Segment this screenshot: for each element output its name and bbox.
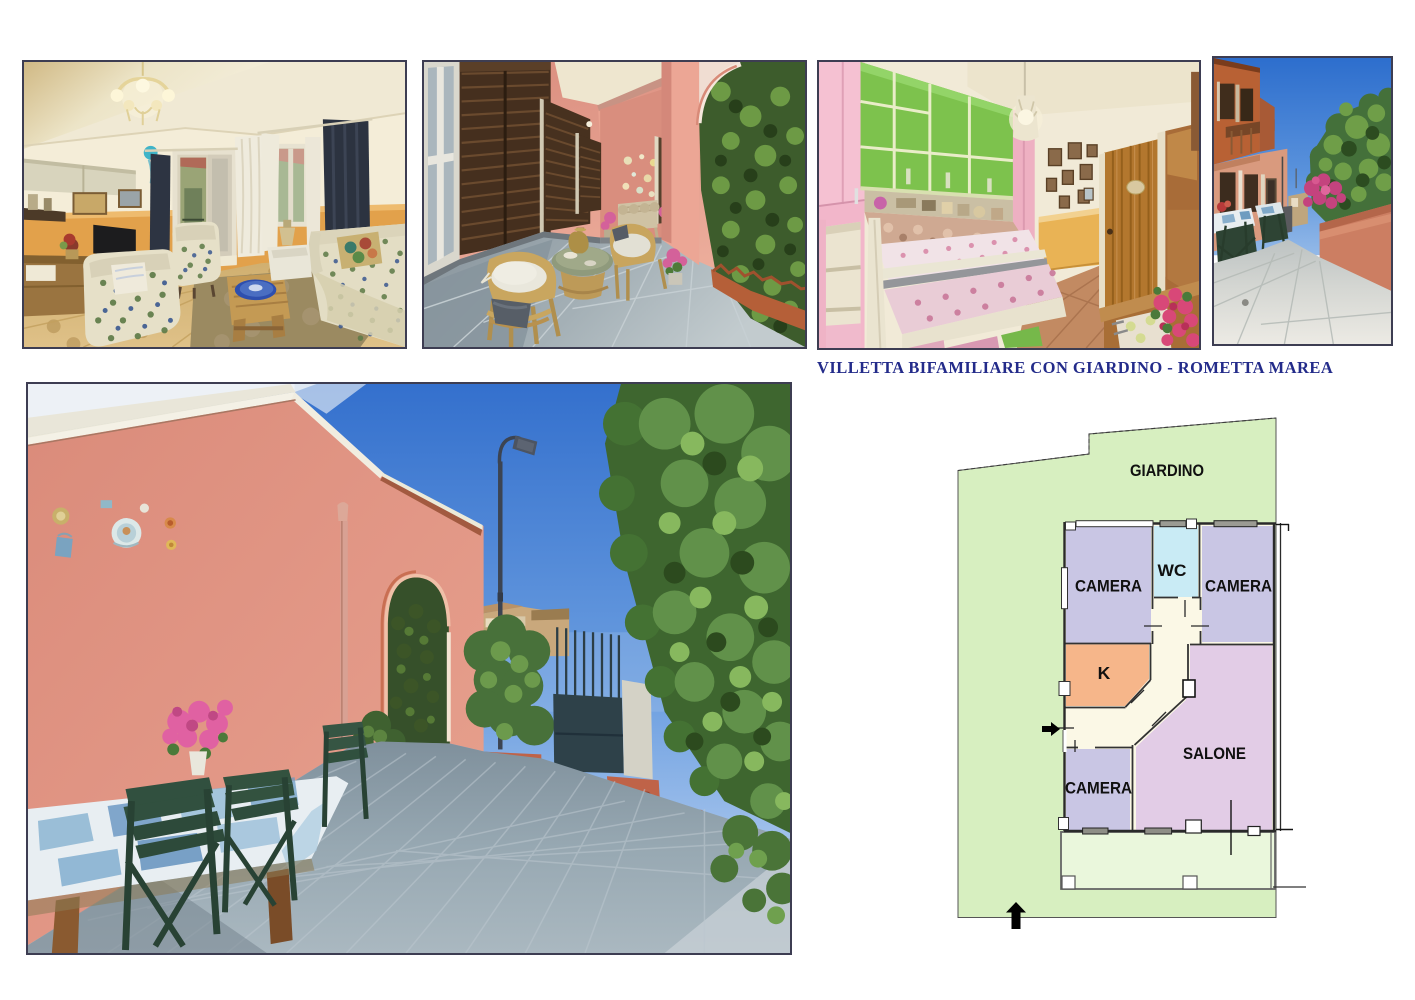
svg-text:CAMERA: CAMERA — [1065, 779, 1132, 798]
svg-text:CAMERA: CAMERA — [1075, 577, 1142, 596]
svg-text:WC: WC — [1158, 561, 1187, 580]
svg-text:CAMERA: CAMERA — [1205, 577, 1272, 596]
svg-text:GIARDINO: GIARDINO — [1130, 461, 1204, 480]
svg-text:K: K — [1098, 663, 1111, 683]
svg-text:SALONE: SALONE — [1183, 744, 1246, 763]
